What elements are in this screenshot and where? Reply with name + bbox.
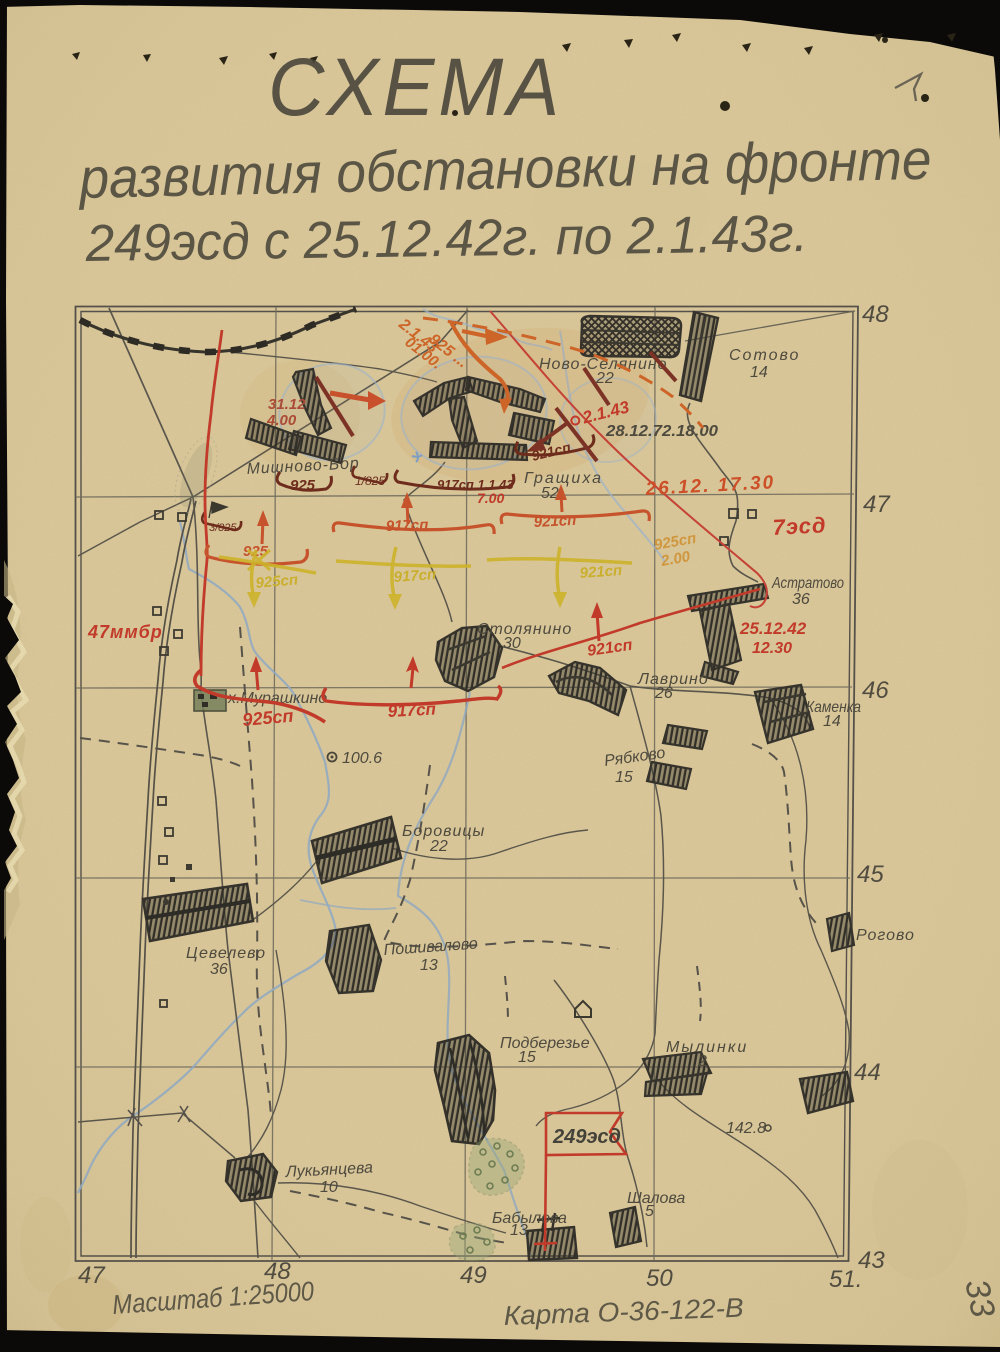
svg-text:Шалова: Шалова — [627, 1190, 685, 1207]
svg-text:249эсд: 249эсд — [552, 1126, 621, 1148]
svg-text:13: 13 — [420, 957, 438, 974]
svg-text:Рогово: Рогово — [856, 927, 915, 944]
svg-text:917сп: 917сп — [393, 566, 437, 586]
svg-text:Мылинки: Мылинки — [666, 1039, 748, 1056]
svg-text:Бабылова: Бабылова — [492, 1210, 567, 1227]
svg-text:7эсд: 7эсд — [772, 512, 827, 540]
svg-text:49: 49 — [460, 1262, 487, 1289]
svg-text:14: 14 — [823, 713, 841, 730]
svg-text:917сп: 917сп — [386, 517, 429, 535]
svg-text:2: 2 — [697, 1053, 707, 1070]
svg-text:5: 5 — [645, 1203, 654, 1220]
svg-text:25.12.42: 25.12.42 — [739, 619, 807, 638]
svg-text:100.6: 100.6 — [342, 750, 382, 767]
svg-text:22: 22 — [595, 370, 614, 387]
svg-text:Сотово: Сотово — [729, 347, 800, 364]
svg-text:СХЕМА: СХЕМА — [268, 42, 563, 133]
svg-text:7.00: 7.00 — [477, 490, 504, 506]
svg-text:Гращиха: Гращиха — [524, 470, 603, 487]
svg-text:45: 45 — [857, 861, 884, 888]
svg-text:46: 46 — [862, 677, 889, 704]
svg-text:Столянино: Столянино — [477, 621, 572, 638]
svg-text:22: 22 — [429, 838, 448, 855]
svg-text:921сп: 921сп — [533, 512, 576, 531]
svg-text:36: 36 — [210, 961, 228, 978]
svg-text:48: 48 — [862, 301, 889, 328]
svg-text:10: 10 — [320, 1179, 338, 1196]
svg-text:47ммбр: 47ммбр — [87, 622, 163, 642]
svg-text:925: 925 — [290, 477, 316, 494]
svg-text:36: 36 — [792, 591, 810, 608]
svg-text:Астратово: Астратово — [771, 575, 844, 592]
svg-text:Лаврино: Лаврино — [637, 671, 709, 688]
svg-text:12.30: 12.30 — [752, 640, 792, 657]
svg-text:14: 14 — [750, 364, 768, 381]
svg-text:31.12: 31.12 — [268, 396, 306, 413]
svg-text:47: 47 — [863, 491, 891, 518]
svg-text:142.8: 142.8 — [726, 1120, 766, 1137]
svg-text:50: 50 — [646, 1265, 673, 1292]
svg-text:15: 15 — [615, 769, 633, 786]
svg-text:917сп: 917сп — [387, 699, 437, 721]
svg-text:Подберезье: Подберезье — [500, 1035, 590, 1052]
svg-text:47: 47 — [78, 1262, 106, 1289]
svg-text:249эсд с 25.12.42г. по 2.1: 249эсд с 25.12.42г. по 2.1.43г. — [84, 205, 808, 273]
svg-text:15: 15 — [518, 1049, 536, 1066]
svg-text:3/825: 3/825 — [209, 522, 237, 534]
svg-text:30: 30 — [503, 635, 521, 652]
svg-text:13: 13 — [510, 1222, 528, 1239]
svg-text:4.00: 4.00 — [266, 412, 297, 429]
svg-text:44: 44 — [854, 1059, 881, 1086]
svg-text:51.: 51. — [829, 1266, 862, 1293]
svg-text:26: 26 — [654, 685, 673, 702]
svg-text:1/825: 1/825 — [355, 474, 385, 488]
svg-text:Цевелево: Цевелево — [186, 945, 266, 962]
svg-text:921сп: 921сп — [579, 562, 623, 582]
